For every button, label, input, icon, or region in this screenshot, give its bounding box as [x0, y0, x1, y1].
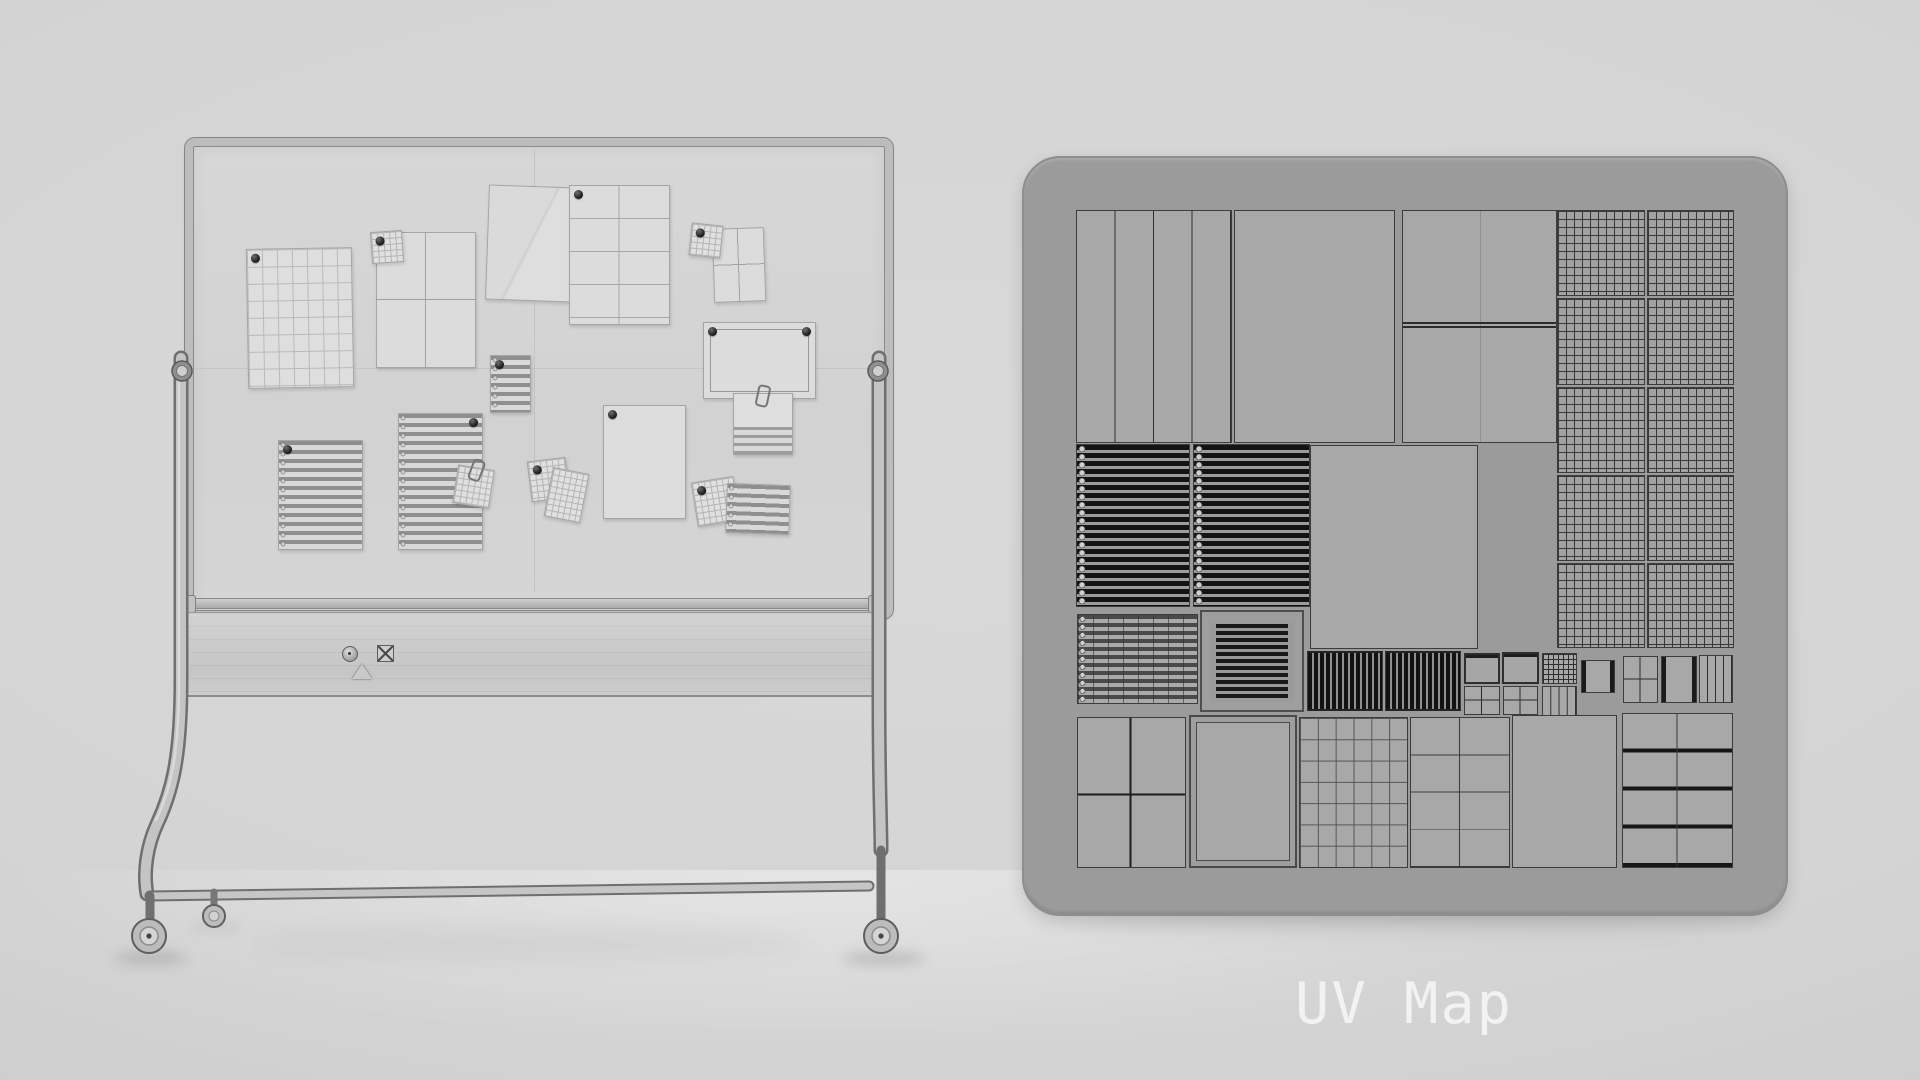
uv-island-i-minicross — [1623, 656, 1658, 703]
uv-island-i-grid — [1647, 210, 1734, 296]
uv-island-i-grid — [1557, 387, 1645, 473]
uv-island-i-miniside — [1581, 660, 1615, 693]
uv-island-i-miniside — [1661, 656, 1697, 703]
uv-island-i-minicross — [1464, 686, 1500, 715]
uv-island-i-grid — [1557, 210, 1645, 296]
uv-island-i-splith — [1402, 210, 1557, 443]
uv-island-i-grid — [1557, 563, 1645, 648]
uv-island-i-hstripes — [1076, 444, 1190, 607]
uv-island-i-miniframe — [1502, 652, 1539, 684]
uv-island-i-vbars — [1385, 651, 1461, 711]
uv-island-i-minicross — [1503, 686, 1538, 715]
uv-island-i-plain — [1234, 210, 1395, 443]
uv-island-i-grid — [1647, 475, 1734, 561]
uv-island-i-grid — [1647, 563, 1734, 648]
uv-island-i-frstripes — [1200, 610, 1304, 712]
uv-island-i-minicols — [1699, 655, 1733, 703]
render-scene: { "caption": { "label": "UV Map" }, "sce… — [0, 0, 1920, 1080]
uv-island-i-grid6 — [1299, 717, 1408, 868]
uv-island-i-cols4 — [1076, 210, 1232, 443]
uv-island-i-vbars — [1307, 651, 1383, 711]
uv-island-i-plain — [1310, 445, 1478, 649]
uv-island-i-hsgrid — [1077, 614, 1198, 704]
uv-island-i-cross2x2 — [1077, 717, 1186, 868]
uv-island-i-grid — [1557, 475, 1645, 561]
uv-island-i-grid — [1647, 298, 1734, 385]
uv-map-caption: UV Map — [1295, 976, 1513, 1033]
uv-island-i-grid — [1557, 298, 1645, 385]
uv-islands-layer — [0, 0, 1920, 1080]
uv-island-i-rows4d — [1622, 713, 1733, 868]
uv-island-i-miniframe — [1464, 653, 1500, 684]
uv-island-i-plain — [1512, 715, 1617, 868]
uv-island-i-hstripes — [1193, 444, 1310, 607]
uv-island-i-rows4 — [1410, 717, 1510, 868]
uv-island-i-grid — [1647, 387, 1734, 473]
uv-island-i-framed — [1189, 715, 1297, 868]
uv-island-i-minicols — [1542, 686, 1577, 716]
uv-island-i-minigrid — [1542, 653, 1577, 684]
